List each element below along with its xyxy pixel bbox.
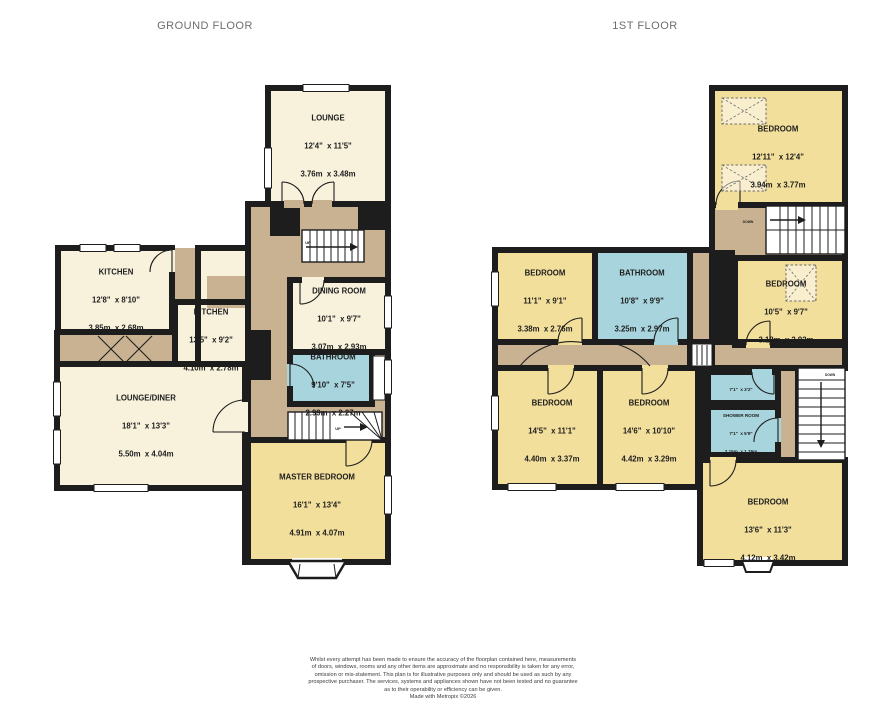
made-with-credit: Made with Metropix ©2026: [0, 694, 886, 701]
room-label-bedroom-low-mid: BEDROOM 14'6" x 10'10" 4.42m x 3.29m: [621, 379, 676, 472]
master-bedroom-bay-window: [288, 558, 346, 578]
room-dim-metric: 2.99m x 2.27m: [305, 408, 360, 417]
disclaimer-line: omission or mis-statement. This plan is …: [0, 672, 886, 679]
room-name: LOUNGE/DINER: [116, 393, 176, 402]
first-floor-title: 1ST FLOOR: [612, 20, 677, 32]
disclaimer-line: of doors, windows, rooms and any other i…: [0, 664, 886, 671]
room-dim-imperial: 14'5" x 11'1": [524, 426, 579, 435]
room-dim-metric: 3.38m x 2.76m: [517, 324, 572, 333]
disclaimer-line: as to their operability or efficiency ca…: [0, 687, 886, 694]
room-dim-imperial: 7'1" x 5'9": [723, 431, 759, 437]
room-name: BEDROOM: [621, 398, 676, 407]
disclaimer-line: Whilst every attempt has been made to en…: [0, 657, 886, 664]
room-dim-imperial: 11'1" x 9'1": [517, 296, 572, 305]
room-label-bedroom-mid-left: BEDROOM 11'1" x 9'1" 3.38m x 2.76m: [517, 249, 572, 342]
room-name: BATHROOM: [305, 352, 360, 361]
room-dim-imperial: 10'8" x 9'9": [614, 296, 669, 305]
room-label-lounge: LOUNGE 12'4" x 11'5" 3.76m x 3.48m: [300, 94, 355, 187]
room-dim-metric: 3.85m x 2.68m: [88, 323, 143, 332]
room-label-lounge-diner: LOUNGE/DINER 18'1" x 13'3" 5.50m x 4.04m: [116, 374, 176, 467]
room-dim-imperial: 13'6" x 11'3": [740, 525, 795, 534]
stairs-up-label: UP: [305, 240, 311, 245]
room-dim-metric: 4.42m x 3.29m: [621, 454, 676, 463]
room-dim-imperial: 13'5" x 9'2": [183, 335, 238, 344]
room-dim-imperial: 12'4" x 11'5": [300, 141, 355, 150]
room-dim-metric: 3.76m x 3.48m: [300, 169, 355, 178]
landing-cupboard: [692, 344, 712, 366]
room-dim-metric: 2.15m x 1.76m: [723, 449, 759, 455]
room-dim-metric: 3.25m x 2.97m: [614, 324, 669, 333]
floorplan-page: { "colors": { "wall": "#1d1d1d", "room_c…: [0, 0, 886, 710]
disclaimer: Whilst every attempt has been made to en…: [0, 657, 886, 701]
room-label-shower-room: SHOWER ROOM 7'1" x 5'9" 2.15m x 1.76m: [723, 401, 759, 461]
room-dim-imperial: 7'1" x 3'2": [725, 387, 757, 393]
room-name: KITCHEN: [183, 307, 238, 316]
stairs-up-label: UP: [335, 426, 341, 431]
room-dim-metric: 4.40m x 3.37m: [524, 454, 579, 463]
ground-floor-stairs-upper: UP: [302, 230, 364, 262]
room-name: BEDROOM: [740, 497, 795, 506]
room-label-master-bedroom: MASTER BEDROOM 16'1" x 13'4" 4.91m x 4.0…: [279, 453, 355, 546]
room-dim-imperial: 16'1" x 13'4": [279, 500, 355, 509]
ground-floor-title: GROUND FLOOR: [157, 20, 253, 32]
room-dim-metric: 3.18m x 2.92m: [758, 335, 813, 344]
room-dim-imperial: 14'6" x 10'10": [621, 426, 676, 435]
room-name: MASTER BEDROOM: [279, 472, 355, 481]
room-name: BATHROOM: [614, 268, 669, 277]
stairs-down-label: DOWN: [743, 220, 754, 224]
room-name: WC: [725, 369, 757, 375]
room-dim-imperial: 12'11" x 12'4": [750, 152, 805, 161]
room-name: DINING ROOM: [311, 286, 366, 295]
room-dim-metric: 3.94m x 3.77m: [750, 180, 805, 189]
room-dim-imperial: 18'1" x 13'3": [116, 421, 176, 430]
room-name: LOUNGE: [300, 113, 355, 122]
first-floor-stairs-right: DOWN: [798, 368, 845, 460]
room-label-bedroom-top: BEDROOM 12'11" x 12'4" 3.94m x 3.77m: [750, 105, 805, 198]
room-name: KITCHEN: [88, 267, 143, 276]
room-label-bathroom-first: BATHROOM 10'8" x 9'9" 3.25m x 2.97m: [614, 249, 669, 342]
disclaimer-line: prospective purchaser. The services, sys…: [0, 679, 886, 686]
room-label-bedroom-mid-right: BEDROOM 10'5" x 9'7" 3.18m x 2.92m: [758, 260, 813, 353]
room-name: BEDROOM: [758, 279, 813, 288]
room-label-kitchen-center: KITCHEN 13'5" x 9'2" 4.10m x 2.78m: [183, 288, 238, 381]
room-label-kitchen-left: KITCHEN 12'8" x 8'10" 3.85m x 2.68m: [88, 248, 143, 341]
room-dim-imperial: 9'10" x 7'5": [305, 380, 360, 389]
room-dim-metric: 5.50m x 4.04m: [116, 449, 176, 458]
room-label-bedroom-bottom: BEDROOM 13'6" x 11'3" 4.12m x 3.42m: [740, 478, 795, 571]
room-dim-imperial: 10'1" x 9'7": [311, 314, 366, 323]
room-dim-metric: 4.10m x 2.78m: [183, 363, 238, 372]
room-name: BEDROOM: [750, 124, 805, 133]
room-label-bathroom-ground: BATHROOM 9'10" x 7'5" 2.99m x 2.27m: [305, 333, 360, 426]
stairs-down-label: DOWN: [825, 373, 836, 377]
room-dim-metric: 4.12m x 3.42m: [740, 553, 795, 562]
room-dim-metric: 4.91m x 4.07m: [279, 528, 355, 537]
room-label-bedroom-low-left: BEDROOM 14'5" x 11'1" 4.40m x 3.37m: [524, 379, 579, 472]
room-name: BEDROOM: [524, 398, 579, 407]
room-name: BEDROOM: [517, 268, 572, 277]
room-dim-imperial: 10'5" x 9'7": [758, 307, 813, 316]
room-name: SHOWER ROOM: [723, 413, 759, 419]
room-dim-imperial: 12'8" x 8'10": [88, 295, 143, 304]
